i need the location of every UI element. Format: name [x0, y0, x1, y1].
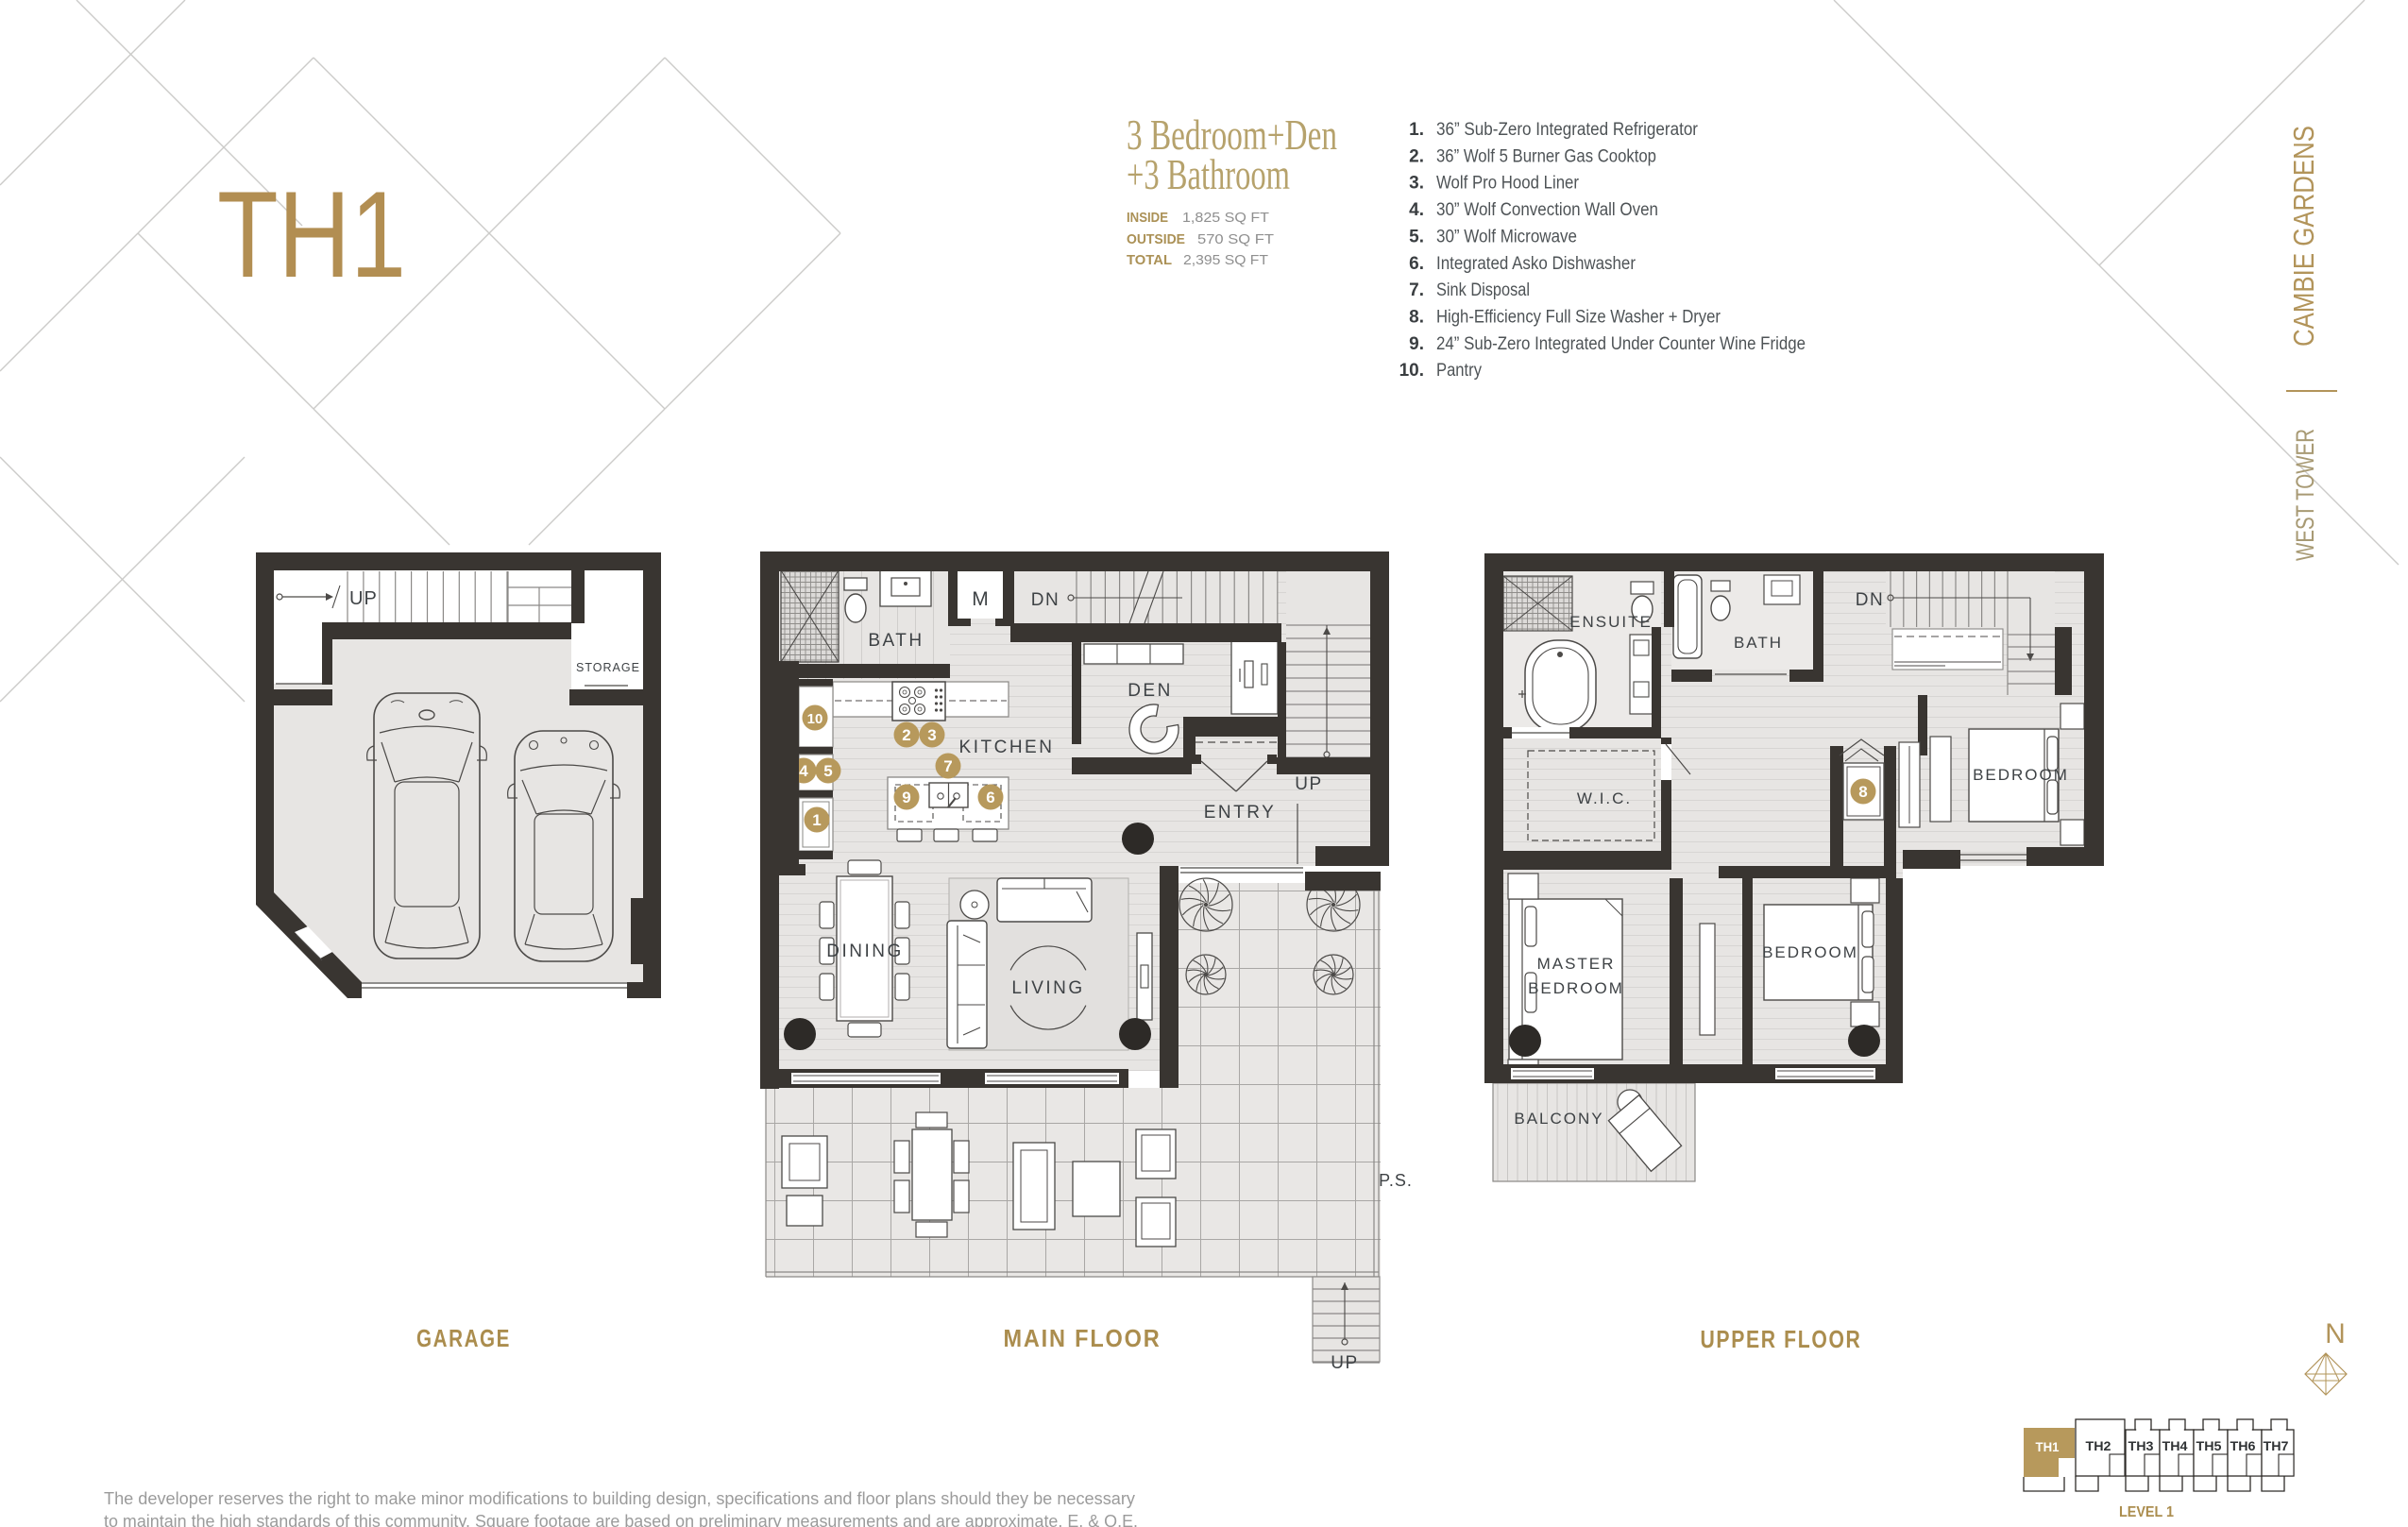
- svg-text:3: 3: [927, 726, 936, 744]
- svg-text:MASTER: MASTER: [1537, 955, 1616, 973]
- svg-text:UP: UP: [1331, 1353, 1358, 1373]
- svg-text:Sink Disposal: Sink Disposal: [1436, 280, 1530, 300]
- svg-text:TH5: TH5: [2196, 1438, 2222, 1453]
- svg-text:TH6: TH6: [2230, 1438, 2256, 1453]
- svg-text:TH1: TH1: [217, 165, 406, 303]
- svg-text:INSIDE: INSIDE: [1127, 210, 1168, 226]
- svg-text:GARAGE: GARAGE: [416, 1324, 511, 1352]
- svg-text:BEDROOM: BEDROOM: [1762, 943, 1858, 961]
- svg-text:TH2: TH2: [2086, 1438, 2111, 1453]
- svg-text:TH4: TH4: [2162, 1438, 2188, 1453]
- svg-text:The developer reserves the rig: The developer reserves the right to make…: [104, 1489, 1135, 1508]
- svg-text:BEDROOM: BEDROOM: [1528, 979, 1624, 997]
- svg-text:ENTRY: ENTRY: [1204, 803, 1277, 823]
- svg-text:ENSUITE: ENSUITE: [1569, 613, 1653, 631]
- svg-text:W.I.C.: W.I.C.: [1577, 789, 1632, 807]
- svg-text:UPPER FLOOR: UPPER FLOOR: [1701, 1325, 1862, 1353]
- svg-text:6: 6: [986, 789, 994, 806]
- svg-text:7: 7: [943, 757, 952, 775]
- svg-text:MAIN FLOOR: MAIN FLOOR: [1004, 1324, 1162, 1352]
- svg-text:DEN: DEN: [1128, 681, 1173, 701]
- svg-text:6.: 6.: [1409, 254, 1424, 274]
- svg-text:1,825 SQ FT: 1,825 SQ FT: [1182, 210, 1269, 226]
- svg-text:9: 9: [902, 789, 910, 806]
- svg-text:DN: DN: [1031, 590, 1060, 610]
- svg-text:24” Sub-Zero Integrated Under: 24” Sub-Zero Integrated Under Counter Wi…: [1436, 334, 1806, 354]
- svg-text:UP: UP: [1295, 774, 1322, 794]
- svg-text:LEVEL 1: LEVEL 1: [2119, 1504, 2174, 1520]
- svg-text:Pantry: Pantry: [1436, 361, 1482, 381]
- svg-text:Wolf Pro Hood Liner: Wolf Pro Hood Liner: [1436, 174, 1580, 194]
- svg-text:4.: 4.: [1409, 200, 1424, 220]
- svg-text:5: 5: [823, 762, 832, 780]
- svg-text:4: 4: [799, 762, 808, 780]
- svg-text:High-Efficiency Full Size Wash: High-Efficiency Full Size Washer + Dryer: [1436, 308, 1721, 328]
- svg-text:2.: 2.: [1409, 146, 1424, 166]
- svg-text:10.: 10.: [1399, 361, 1424, 381]
- svg-text:N: N: [2325, 1318, 2346, 1349]
- svg-text:STORAGE: STORAGE: [576, 661, 640, 674]
- svg-text:Integrated Asko Dishwasher: Integrated Asko Dishwasher: [1436, 254, 1636, 274]
- svg-text:to maintain the high standards: to maintain the high standards of this c…: [104, 1512, 1138, 1527]
- svg-text:DINING: DINING: [826, 942, 904, 961]
- svg-text:10: 10: [807, 711, 823, 727]
- svg-text:BATH: BATH: [1734, 634, 1783, 652]
- svg-text:5.: 5.: [1409, 227, 1424, 246]
- svg-text:BALCONY: BALCONY: [1514, 1110, 1603, 1128]
- svg-text:36” Wolf 5 Burner Gas Cooktop: 36” Wolf 5 Burner Gas Cooktop: [1436, 146, 1656, 166]
- svg-text:1: 1: [812, 811, 821, 829]
- svg-text:BATH: BATH: [868, 631, 924, 651]
- svg-text:CAMBIE GARDENS: CAMBIE GARDENS: [2287, 126, 2320, 347]
- svg-text:OUTSIDE: OUTSIDE: [1127, 231, 1185, 247]
- svg-text:WEST TOWER: WEST TOWER: [2291, 429, 2319, 561]
- svg-text:1.: 1.: [1409, 120, 1424, 140]
- svg-text:36” Sub-Zero Integrated Refrig: 36” Sub-Zero Integrated Refrigerator: [1436, 120, 1699, 140]
- svg-text:BEDROOM: BEDROOM: [1973, 766, 2069, 784]
- svg-text:2: 2: [902, 726, 910, 744]
- svg-text:30” Wolf Convection Wall Oven: 30” Wolf Convection Wall Oven: [1436, 200, 1658, 220]
- svg-text:TH1: TH1: [2036, 1439, 2060, 1454]
- svg-text:TH7: TH7: [2264, 1438, 2289, 1453]
- svg-text:TH3: TH3: [2128, 1438, 2154, 1453]
- svg-text:UP: UP: [349, 588, 378, 609]
- svg-text:P.S.: P.S.: [1379, 1171, 1413, 1190]
- svg-text:2,395 SQ FT: 2,395 SQ FT: [1183, 252, 1268, 268]
- svg-text:KITCHEN: KITCHEN: [959, 738, 1055, 757]
- svg-text:+3 Bathroom: +3 Bathroom: [1127, 151, 1290, 198]
- svg-text:LIVING: LIVING: [1011, 978, 1084, 998]
- svg-text:3.: 3.: [1409, 174, 1424, 194]
- svg-text:8: 8: [1858, 783, 1867, 801]
- svg-text:7.: 7.: [1409, 280, 1424, 300]
- svg-text:TOTAL: TOTAL: [1127, 252, 1172, 268]
- svg-text:30” Wolf Microwave: 30” Wolf Microwave: [1436, 227, 1577, 246]
- svg-text:570 SQ FT: 570 SQ FT: [1197, 231, 1274, 247]
- svg-text:9.: 9.: [1409, 334, 1424, 354]
- svg-text:8.: 8.: [1409, 308, 1424, 328]
- svg-text:M: M: [972, 588, 989, 610]
- svg-text:DN: DN: [1856, 590, 1884, 610]
